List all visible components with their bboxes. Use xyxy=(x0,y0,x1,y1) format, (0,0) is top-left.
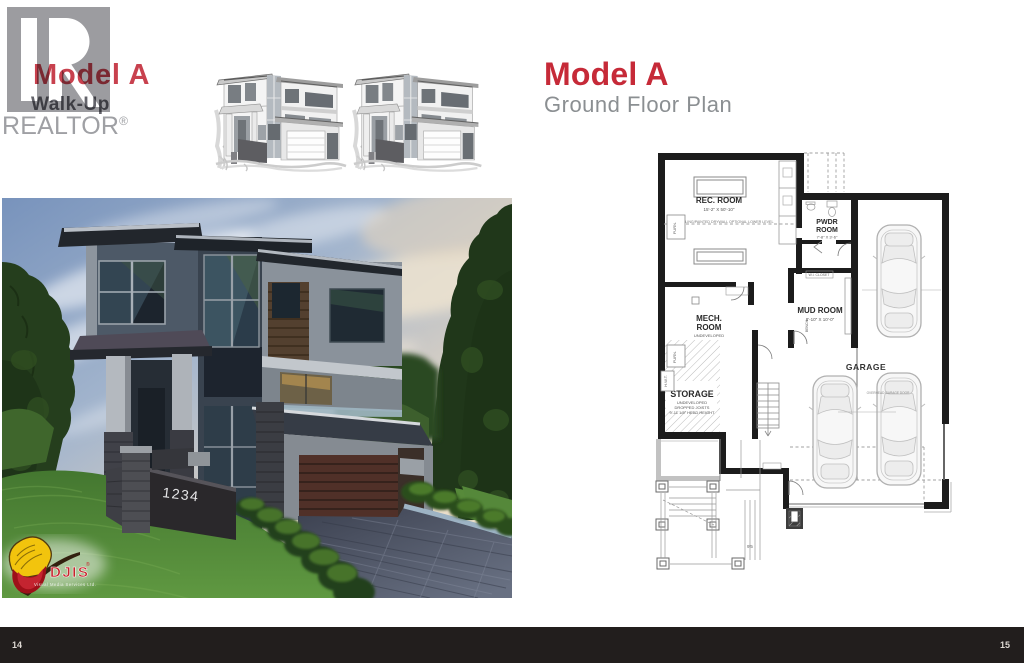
svg-text:9'-11 1/8" HEAD HEIGHT: 9'-11 1/8" HEAD HEIGHT xyxy=(669,410,715,415)
svg-text:ROOM: ROOM xyxy=(697,323,722,332)
svg-text:FURN.: FURN. xyxy=(672,351,677,363)
svg-text:REC. ROOM: REC. ROOM xyxy=(696,196,743,205)
svg-text:OVERHEAD GARAGE DOOR: OVERHEAD GARAGE DOOR xyxy=(867,391,911,395)
svg-text:15'-2" X 50'-10": 15'-2" X 50'-10" xyxy=(704,207,735,212)
svg-text:GARAGE: GARAGE xyxy=(846,362,886,372)
svg-text:BENCH: BENCH xyxy=(805,319,809,332)
svg-text:®: ® xyxy=(86,561,90,568)
svg-text:9'5: 9'5 xyxy=(747,544,753,549)
svg-text:H.W.T.: H.W.T. xyxy=(663,375,668,387)
svg-text:ROOM: ROOM xyxy=(816,227,838,234)
svg-text:STORAGE: STORAGE xyxy=(670,389,713,399)
svg-text:W.I. CLOSET: W.I. CLOSET xyxy=(808,273,830,277)
svg-text:MECH.: MECH. xyxy=(696,314,722,323)
svg-text:DJIS: DJIS xyxy=(50,564,89,581)
svg-text:Visual Media Services Ltd.: Visual Media Services Ltd. xyxy=(34,582,96,587)
svg-text:7'-8" X 3'-6": 7'-8" X 3'-6" xyxy=(817,235,838,240)
svg-text:UNDEVELOPED: UNDEVELOPED xyxy=(694,333,724,338)
svg-text:8'-10" X 10'-0": 8'-10" X 10'-0" xyxy=(806,317,835,322)
svg-text:MUD ROOM: MUD ROOM xyxy=(797,306,843,315)
svg-text:FURN.: FURN. xyxy=(672,222,677,234)
svg-text:PWDR: PWDR xyxy=(816,219,837,226)
